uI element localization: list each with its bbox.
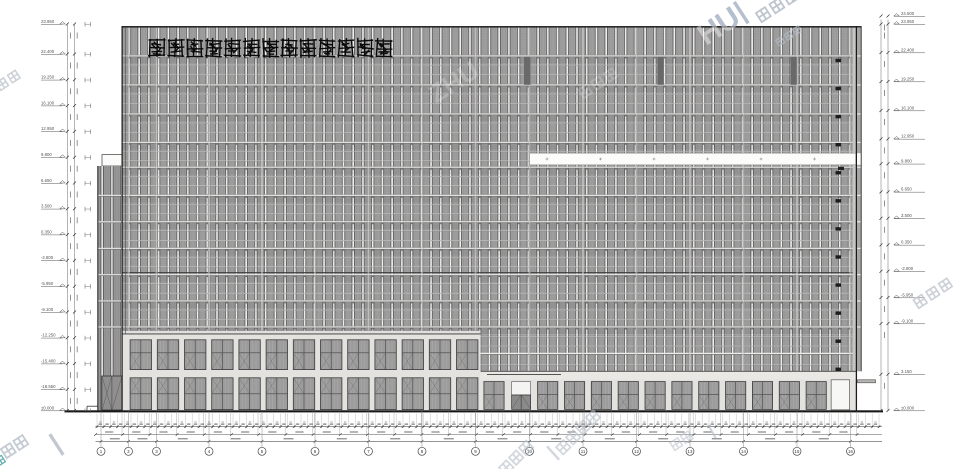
svg-text:22.400: 22.400 xyxy=(901,47,915,52)
svg-text:±0.000: ±0.000 xyxy=(901,405,915,410)
svg-text:12.950: 12.950 xyxy=(901,134,915,139)
svg-text:-5.950: -5.950 xyxy=(901,292,914,297)
svg-text:14: 14 xyxy=(741,449,746,454)
svg-text:16.100: 16.100 xyxy=(41,100,55,105)
svg-text:6.650: 6.650 xyxy=(901,187,912,192)
svg-text:23.950: 23.950 xyxy=(41,19,55,24)
svg-text:-5.950: -5.950 xyxy=(41,281,54,286)
svg-text:3.500: 3.500 xyxy=(41,204,52,209)
svg-text:6.650: 6.650 xyxy=(41,178,52,183)
svg-text:22.400: 22.400 xyxy=(41,49,55,54)
svg-text:19.250: 19.250 xyxy=(41,75,55,80)
svg-text:3.500: 3.500 xyxy=(901,213,912,218)
svg-text:-18.550: -18.550 xyxy=(41,384,56,389)
svg-text:0.350: 0.350 xyxy=(901,240,912,245)
svg-text:15: 15 xyxy=(795,449,800,454)
svg-text:12.950: 12.950 xyxy=(41,126,55,131)
svg-text:16: 16 xyxy=(848,449,853,454)
svg-text:±0.000: ±0.000 xyxy=(41,405,55,410)
svg-text:16.100: 16.100 xyxy=(901,105,915,110)
svg-text:24.500: 24.500 xyxy=(901,11,915,16)
svg-text:12: 12 xyxy=(634,449,639,454)
svg-text:23.950: 23.950 xyxy=(901,19,915,24)
svg-text:0.350: 0.350 xyxy=(41,229,52,234)
svg-text:3.150: 3.150 xyxy=(901,369,912,374)
svg-text:-9.100: -9.100 xyxy=(41,307,54,312)
svg-text:-2.800: -2.800 xyxy=(41,255,54,260)
svg-text:-9.100: -9.100 xyxy=(901,318,914,323)
svg-text:9.800: 9.800 xyxy=(901,159,912,164)
svg-text:11: 11 xyxy=(581,449,586,454)
svg-text:-12.250: -12.250 xyxy=(41,333,56,338)
svg-text:13: 13 xyxy=(688,449,693,454)
svg-text:9.800: 9.800 xyxy=(41,152,52,157)
svg-text:-15.400: -15.400 xyxy=(41,358,56,363)
svg-text:-2.800: -2.800 xyxy=(901,266,914,271)
svg-text:19.250: 19.250 xyxy=(901,76,915,81)
